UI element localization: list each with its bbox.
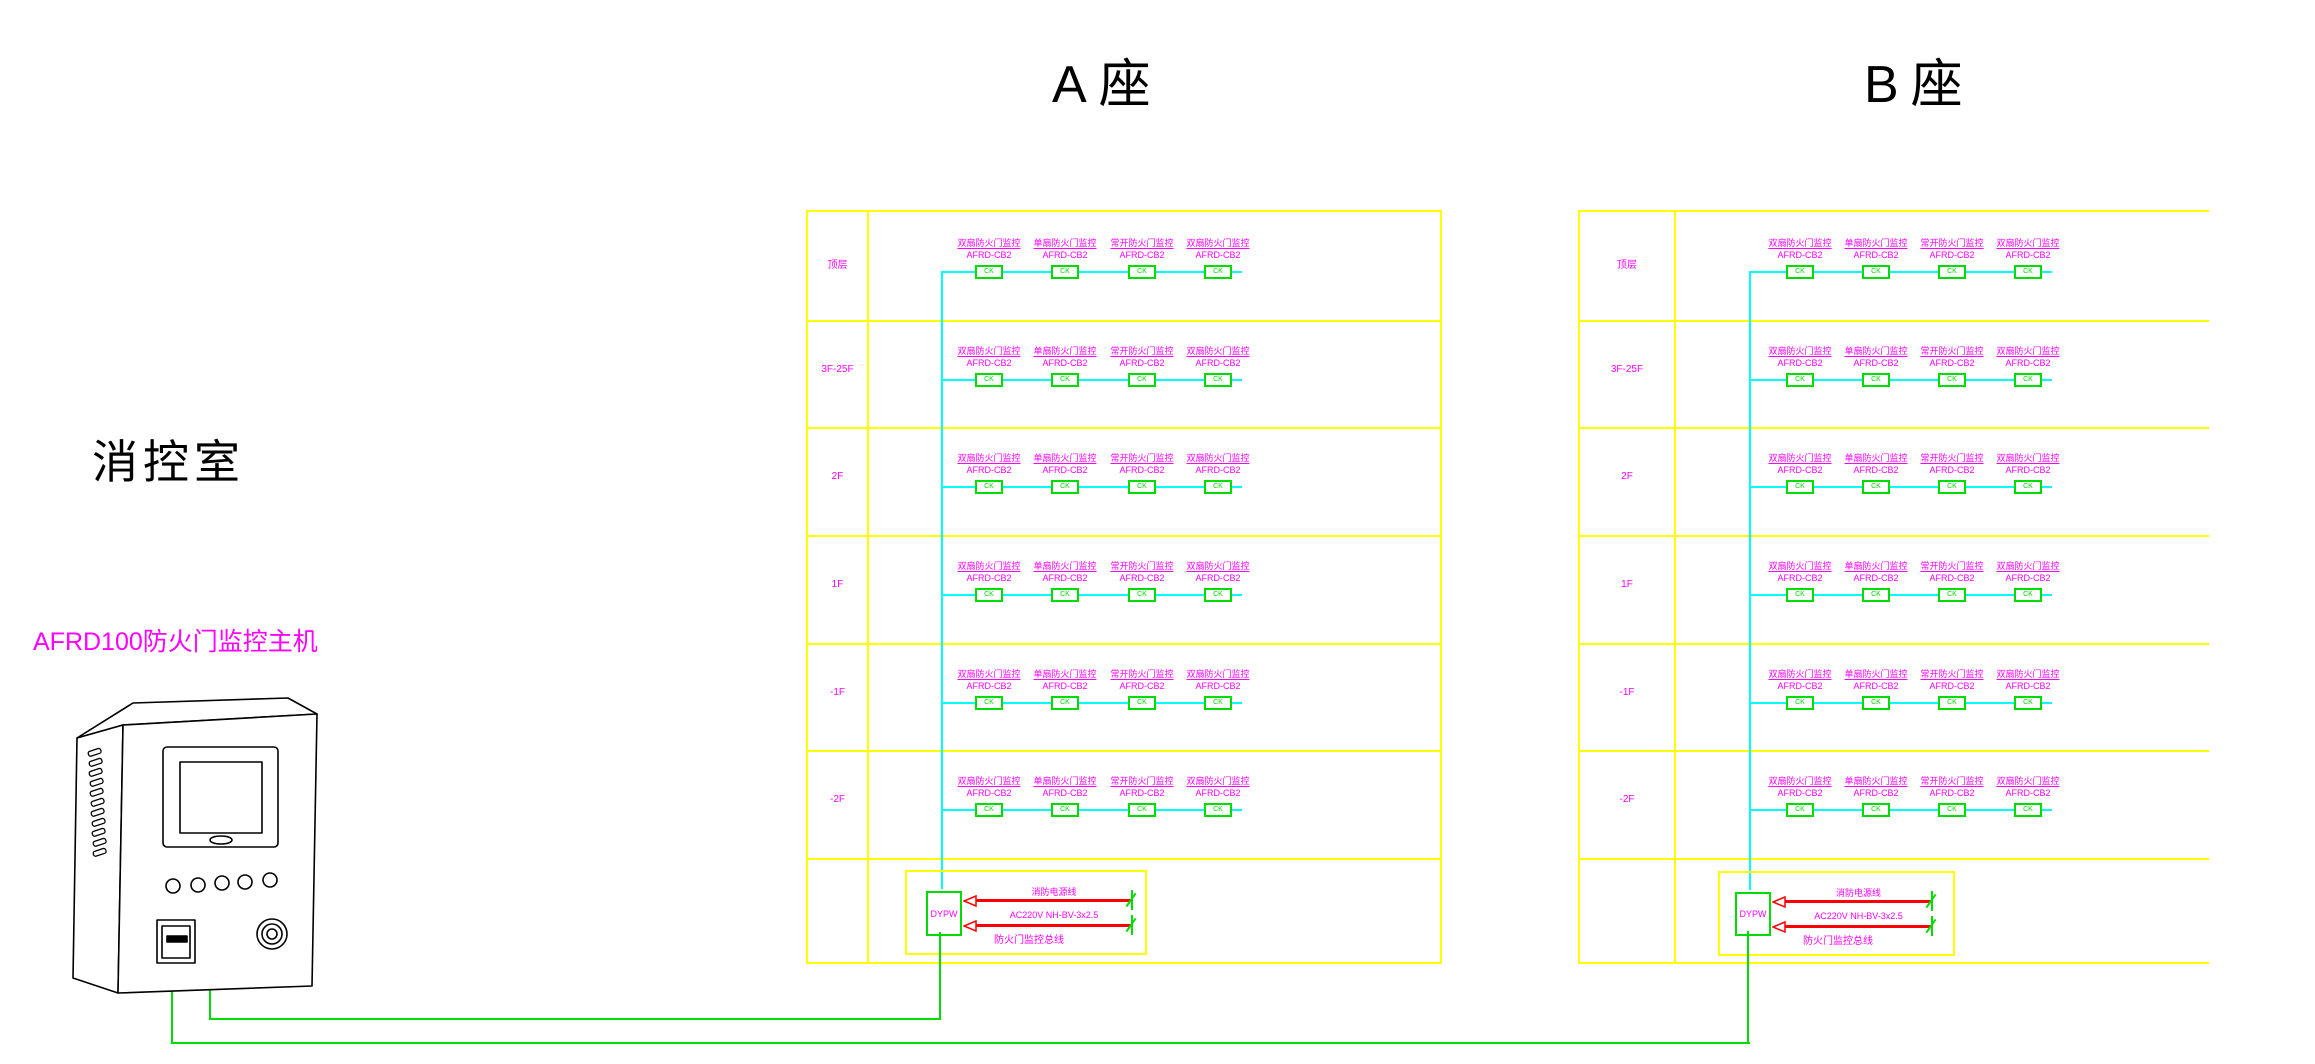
device-tag-box: CK	[1862, 480, 1890, 494]
floor-label: 顶层	[808, 256, 867, 271]
cad-canvas: A座 B座 消控室 AFRD100防火门监控主机	[0, 0, 2315, 1064]
device-tag-box: CK	[1051, 588, 1079, 602]
device-model: AFRD-CB2	[1762, 573, 1838, 583]
device-tag-box: CK	[975, 588, 1003, 602]
floor-label: -1F	[808, 687, 867, 698]
device-model: AFRD-CB2	[951, 573, 1027, 583]
device-title: 双扇防火门监控	[951, 236, 1027, 249]
device-title: 单扇防火门监控	[1027, 236, 1103, 249]
row-separator-line	[1580, 750, 2209, 752]
device-model: AFRD-CB2	[1104, 573, 1180, 583]
device-title: 双扇防火门监控	[1180, 774, 1256, 787]
device-title: 双扇防火门监控	[1180, 344, 1256, 357]
device-model: AFRD-CB2	[1914, 788, 1990, 798]
device-title: 双扇防火门监控	[1180, 559, 1256, 572]
device-model: AFRD-CB2	[1027, 681, 1103, 691]
floor-column-divider	[1674, 212, 1676, 962]
device-tag-box: CK	[1204, 696, 1232, 710]
power-line1-label: 消防电源线	[1785, 886, 1932, 899]
device-tag-box: CK	[1938, 803, 1966, 817]
device-model: AFRD-CB2	[1762, 788, 1838, 798]
device-tag-box: CK	[1204, 373, 1232, 387]
device-title: 单扇防火门监控	[1838, 667, 1914, 680]
device-title: 单扇防火门监控	[1027, 344, 1103, 357]
device-tag-box: CK	[1051, 373, 1079, 387]
device-model: AFRD-CB2	[951, 681, 1027, 691]
device-title: 双扇防火门监控	[951, 774, 1027, 787]
building-b-title: B座	[1864, 42, 1975, 117]
device-model: AFRD-CB2	[1914, 465, 1990, 475]
device-title: 常开防火门监控	[1104, 344, 1180, 357]
power-line3-label: 防火门监控总线	[994, 931, 1064, 946]
device-title: 常开防火门监控	[1104, 559, 1180, 572]
device-title: 双扇防火门监控	[1762, 344, 1838, 357]
device-tag-box: CK	[975, 803, 1003, 817]
device-title: 单扇防火门监控	[1027, 451, 1103, 464]
device-tag-box: CK	[1204, 265, 1232, 279]
floor-label: 1F	[1580, 579, 1674, 590]
device-tag-box: CK	[1862, 588, 1890, 602]
device-title: 单扇防火门监控	[1838, 344, 1914, 357]
device-tag-box: CK	[975, 265, 1003, 279]
monitor-host-cabinet	[55, 690, 365, 1002]
monitor-bus-line	[941, 272, 943, 889]
arrow-head-icon	[963, 919, 977, 931]
host-device-label: AFRD100防火门监控主机	[33, 622, 318, 658]
device-tag-box: CK	[1051, 265, 1079, 279]
floor-column-divider	[867, 212, 869, 962]
device-tag-box: CK	[975, 373, 1003, 387]
device-model: AFRD-CB2	[951, 788, 1027, 798]
device-model: AFRD-CB2	[1027, 788, 1103, 798]
power-line2-label: AC220V NH-BV-3x2.5	[976, 910, 1132, 920]
device-model: AFRD-CB2	[1838, 250, 1914, 260]
power-arrow-line	[1785, 925, 1932, 928]
device-title: 常开防火门监控	[1914, 774, 1990, 787]
device-title: 常开防火门监控	[1104, 451, 1180, 464]
device-tag-box: CK	[1938, 373, 1966, 387]
device-tag-box: CK	[1786, 265, 1814, 279]
arrow-head-icon	[1772, 920, 1786, 932]
power-line1-label: 消防电源线	[976, 885, 1132, 898]
device-title: 双扇防火门监控	[1990, 559, 2066, 572]
device-model: AFRD-CB2	[1990, 788, 2066, 798]
device-title: 单扇防火门监控	[1027, 667, 1103, 680]
control-room-label: 消控室	[92, 426, 245, 492]
device-tag-box: CK	[2014, 696, 2042, 710]
device-title: 常开防火门监控	[1914, 451, 1990, 464]
button-2-icon	[191, 878, 205, 892]
device-model: AFRD-CB2	[1104, 788, 1180, 798]
device-title: 双扇防火门监控	[1990, 344, 2066, 357]
device-tag-box: CK	[1786, 373, 1814, 387]
power-unit-label: DYPW	[1737, 894, 1769, 934]
power-unit-label: DYPW	[928, 893, 960, 934]
row-separator-line	[808, 535, 1440, 537]
device-tag-box: CK	[1786, 480, 1814, 494]
device-tag-box: CK	[1938, 265, 1966, 279]
arrow-head-icon	[963, 894, 977, 906]
device-tag-box: CK	[1204, 480, 1232, 494]
device-title: 双扇防火门监控	[1762, 667, 1838, 680]
device-model: AFRD-CB2	[1180, 358, 1256, 368]
row-separator-line	[1580, 535, 2209, 537]
device-title: 单扇防火门监控	[1838, 774, 1914, 787]
device-title: 单扇防火门监控	[1027, 559, 1103, 572]
device-model: AFRD-CB2	[1914, 358, 1990, 368]
building-grid-B: 顶层双扇防火门监控AFRD-CB2CK单扇防火门监控AFRD-CB2CK常开防火…	[1578, 210, 2209, 964]
device-model: AFRD-CB2	[1762, 465, 1838, 475]
device-model: AFRD-CB2	[1762, 250, 1838, 260]
arrow-head-icon	[1772, 895, 1786, 907]
device-model: AFRD-CB2	[1104, 681, 1180, 691]
power-line3-label: 防火门监控总线	[1803, 932, 1873, 947]
device-model: AFRD-CB2	[1762, 681, 1838, 691]
device-title: 双扇防火门监控	[951, 344, 1027, 357]
device-model: AFRD-CB2	[1838, 681, 1914, 691]
device-title: 双扇防火门监控	[951, 559, 1027, 572]
building-grid-A: 顶层双扇防火门监控AFRD-CB2CK单扇防火门监控AFRD-CB2CK常开防火…	[806, 210, 1442, 964]
row-separator-line	[808, 750, 1440, 752]
device-title: 双扇防火门监控	[1990, 451, 2066, 464]
device-tag-box: CK	[1938, 696, 1966, 710]
row-separator-line	[808, 643, 1440, 645]
power-arrow-line	[1785, 900, 1932, 903]
device-model: AFRD-CB2	[1838, 573, 1914, 583]
device-tag-box: CK	[1128, 588, 1156, 602]
device-model: AFRD-CB2	[1990, 573, 2066, 583]
device-title: 单扇防火门监控	[1838, 451, 1914, 464]
device-tag-box: CK	[1128, 373, 1156, 387]
row-separator-line	[1580, 427, 2209, 429]
floor-label: 2F	[1580, 471, 1674, 482]
device-tag-box: CK	[2014, 265, 2042, 279]
device-tag-box: CK	[1938, 588, 1966, 602]
device-model: AFRD-CB2	[951, 465, 1027, 475]
device-tag-box: CK	[1938, 480, 1966, 494]
device-title: 双扇防火门监控	[1990, 236, 2066, 249]
device-tag-box: CK	[1051, 480, 1079, 494]
device-tag-box: CK	[1128, 696, 1156, 710]
device-model: AFRD-CB2	[1027, 573, 1103, 583]
device-title: 双扇防火门监控	[1762, 236, 1838, 249]
row-separator-line	[808, 427, 1440, 429]
device-tag-box: CK	[975, 696, 1003, 710]
device-tag-box: CK	[2014, 588, 2042, 602]
button-1-icon	[166, 879, 180, 893]
row-separator-line	[808, 320, 1440, 322]
device-model: AFRD-CB2	[1838, 788, 1914, 798]
device-model: AFRD-CB2	[1104, 465, 1180, 475]
device-model: AFRD-CB2	[1104, 358, 1180, 368]
device-title: 常开防火门监控	[1914, 667, 1990, 680]
device-title: 单扇防火门监控	[1838, 559, 1914, 572]
device-title: 常开防火门监控	[1914, 559, 1990, 572]
device-title: 双扇防火门监控	[951, 451, 1027, 464]
device-title: 双扇防火门监控	[1762, 451, 1838, 464]
device-tag-box: CK	[2014, 373, 2042, 387]
cabinet-side-panel	[73, 725, 123, 993]
device-model: AFRD-CB2	[1180, 250, 1256, 260]
floor-label: 顶层	[1580, 256, 1674, 271]
wire-riser-b	[1747, 931, 1749, 1044]
floor-label: 3F-25F	[1580, 364, 1674, 375]
device-model: AFRD-CB2	[1180, 788, 1256, 798]
device-model: AFRD-CB2	[1027, 465, 1103, 475]
device-title: 双扇防火门监控	[951, 667, 1027, 680]
device-tag-box: CK	[1128, 265, 1156, 279]
device-tag-box: CK	[1128, 480, 1156, 494]
device-tag-box: CK	[1051, 696, 1079, 710]
device-tag-box: CK	[1051, 803, 1079, 817]
device-tag-box: CK	[2014, 480, 2042, 494]
device-title: 单扇防火门监控	[1027, 774, 1103, 787]
button-5-icon	[263, 873, 277, 887]
floor-label: 2F	[808, 471, 867, 482]
device-model: AFRD-CB2	[1180, 573, 1256, 583]
device-tag-box: CK	[1204, 588, 1232, 602]
device-title: 常开防火门监控	[1104, 667, 1180, 680]
device-title: 常开防火门监控	[1914, 344, 1990, 357]
floor-label: -2F	[808, 794, 867, 805]
floor-label: -1F	[1580, 687, 1674, 698]
power-unit-box: DYPW	[926, 891, 962, 936]
row-separator-line	[1580, 643, 2209, 645]
monitor-bus-line	[1749, 272, 1751, 890]
device-model: AFRD-CB2	[1838, 465, 1914, 475]
wire-riser-a	[939, 932, 941, 1020]
power-line2-label: AC220V NH-BV-3x2.5	[1785, 911, 1932, 921]
building-a-title: A座	[1052, 42, 1163, 117]
device-model: AFRD-CB2	[1180, 465, 1256, 475]
device-model: AFRD-CB2	[951, 358, 1027, 368]
device-model: AFRD-CB2	[1027, 358, 1103, 368]
wire-host-run-a	[209, 1018, 940, 1020]
device-title: 双扇防火门监控	[1762, 774, 1838, 787]
row-separator-line	[1580, 320, 2209, 322]
device-model: AFRD-CB2	[1027, 250, 1103, 260]
device-model: AFRD-CB2	[951, 250, 1027, 260]
button-4-icon	[238, 875, 252, 889]
floor-label: 1F	[808, 579, 867, 590]
device-tag-box: CK	[1862, 696, 1890, 710]
power-supply-box: DYPW消防电源线AC220V NH-BV-3x2.5防火门监控总线	[1718, 871, 1955, 956]
power-supply-box: DYPW消防电源线AC220V NH-BV-3x2.5防火门监控总线	[905, 870, 1147, 955]
device-model: AFRD-CB2	[1990, 358, 2066, 368]
device-model: AFRD-CB2	[1838, 358, 1914, 368]
device-tag-box: CK	[1862, 803, 1890, 817]
device-tag-box: CK	[1862, 373, 1890, 387]
device-model: AFRD-CB2	[1990, 681, 2066, 691]
device-title: 单扇防火门监控	[1838, 236, 1914, 249]
device-title: 常开防火门监控	[1914, 236, 1990, 249]
device-tag-box: CK	[2014, 803, 2042, 817]
device-title: 双扇防火门监控	[1180, 451, 1256, 464]
device-title: 双扇防火门监控	[1180, 236, 1256, 249]
device-tag-box: CK	[1786, 696, 1814, 710]
row-separator-line	[808, 858, 1440, 860]
device-title: 双扇防火门监控	[1762, 559, 1838, 572]
device-model: AFRD-CB2	[1914, 250, 1990, 260]
device-model: AFRD-CB2	[1990, 465, 2066, 475]
device-title: 双扇防火门监控	[1990, 667, 2066, 680]
row-separator-line	[1580, 858, 2209, 860]
device-tag-box: CK	[975, 480, 1003, 494]
device-model: AFRD-CB2	[1180, 681, 1256, 691]
device-title: 双扇防火门监控	[1990, 774, 2066, 787]
device-tag-box: CK	[1128, 803, 1156, 817]
screen	[180, 762, 262, 833]
device-model: AFRD-CB2	[1990, 250, 2066, 260]
button-3-icon	[215, 876, 229, 890]
device-title: 常开防火门监控	[1104, 236, 1180, 249]
device-tag-box: CK	[1786, 588, 1814, 602]
device-model: AFRD-CB2	[1914, 573, 1990, 583]
floor-label: 3F-25F	[808, 364, 867, 375]
power-unit-box: DYPW	[1735, 892, 1771, 936]
device-tag-box: CK	[1786, 803, 1814, 817]
device-tag-box: CK	[1204, 803, 1232, 817]
device-tag-box: CK	[1862, 265, 1890, 279]
device-model: AFRD-CB2	[1914, 681, 1990, 691]
power-arrow-line	[976, 899, 1132, 902]
bezel-handle	[210, 836, 232, 844]
power-arrow-line	[976, 924, 1132, 927]
wire-host-run-b	[171, 1042, 1750, 1044]
device-model: AFRD-CB2	[1104, 250, 1180, 260]
device-title: 双扇防火门监控	[1180, 667, 1256, 680]
floor-label: -2F	[1580, 794, 1674, 805]
device-model: AFRD-CB2	[1762, 358, 1838, 368]
device-title: 常开防火门监控	[1104, 774, 1180, 787]
